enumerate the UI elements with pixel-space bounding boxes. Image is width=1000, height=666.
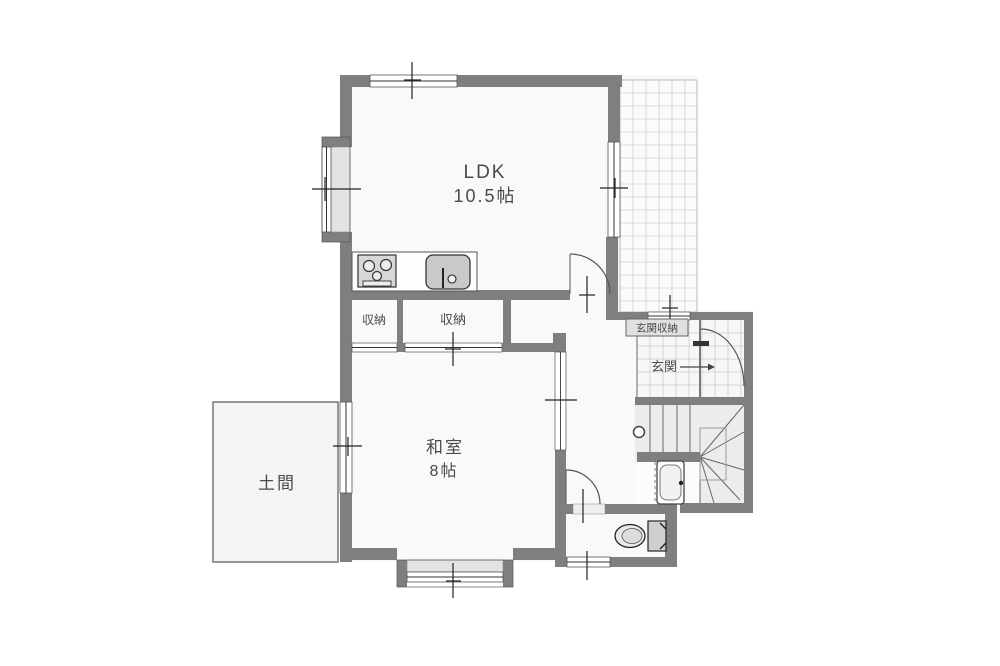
toilet-south-window — [567, 557, 610, 567]
doma-label: 土間 — [258, 474, 296, 493]
ldk-north-window — [370, 75, 457, 87]
washitsu-west-window — [340, 402, 352, 493]
floor-plan-drawing: LDK 10.5帖 和室 8帖 土間 収納 収納 玄関収納 玄関 — [0, 0, 1000, 666]
toilet-doorway — [573, 504, 605, 514]
closet-small-label: 収納 — [362, 313, 386, 327]
genkan-storage-label: 玄関収納 — [636, 322, 678, 335]
stair-start-marker — [634, 427, 645, 438]
genkan-storage-tag: 玄関収納 — [626, 319, 688, 336]
washitsu-bay-window — [397, 560, 513, 587]
terrace-tile-area — [620, 80, 697, 312]
washitsu-label: 和室 — [426, 438, 464, 457]
sink-icon — [426, 255, 470, 289]
washitsu-sliding-door — [555, 352, 566, 450]
genkan-label: 玄関 — [651, 359, 677, 374]
floor-plan-page: LDK 10.5帖 和室 8帖 土間 収納 収納 玄関収納 玄関 — [0, 0, 1000, 666]
washbasin-icon — [655, 461, 684, 504]
washitsu-size: 8帖 — [430, 462, 459, 480]
stove-icon — [358, 255, 396, 287]
closet-small-opening — [352, 343, 397, 352]
closet-large-label: 収納 — [440, 312, 466, 327]
ldk-east-window — [608, 142, 620, 237]
ldk-label: LDK — [464, 162, 507, 183]
ldk-size: 10.5帖 — [453, 186, 516, 206]
kitchen-counter — [352, 252, 477, 291]
